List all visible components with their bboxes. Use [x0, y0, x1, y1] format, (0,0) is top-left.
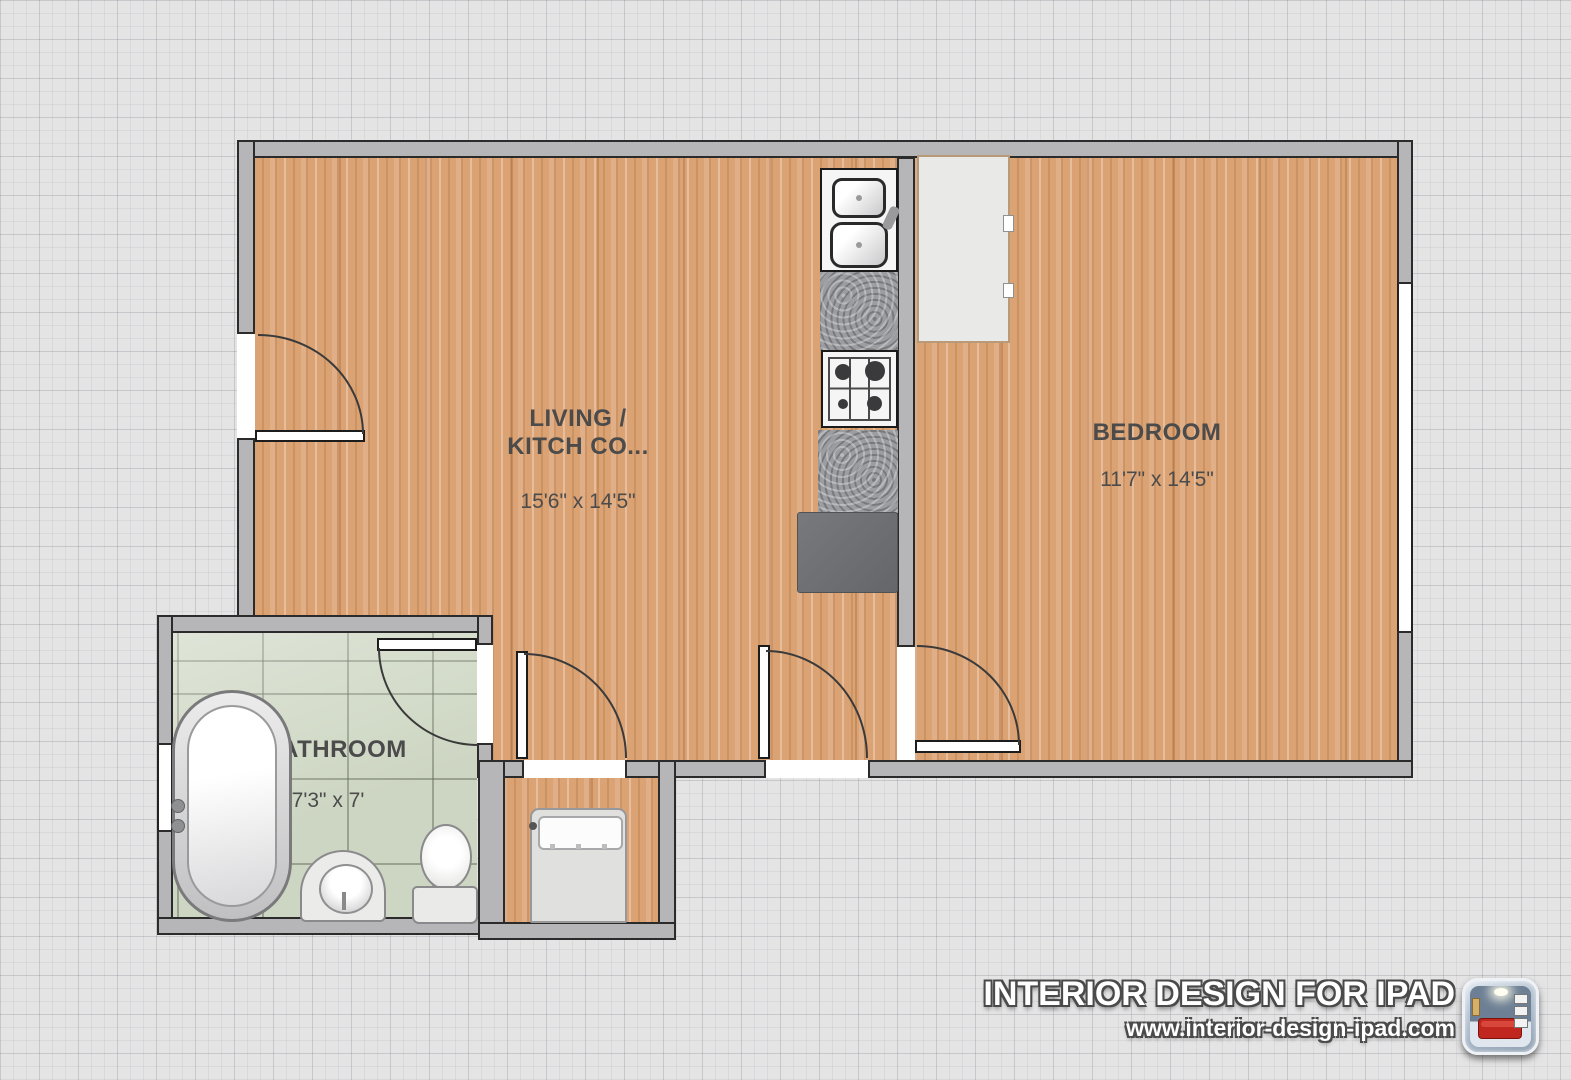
watermark: INTERIOR DESIGN FOR IPAD www.interior-de…: [700, 975, 1455, 1042]
wardrobe-handle-icon: [1003, 283, 1014, 298]
sink-drain-icon: [342, 892, 346, 910]
entry-door-opening: [237, 334, 255, 438]
floor-plan-canvas: { "plan": { "rooms": [ { "id": "living-k…: [0, 0, 1571, 1080]
bathtub[interactable]: [172, 690, 292, 922]
wall-right-lower: [1397, 631, 1413, 778]
wall-divider-living-bedroom: [897, 157, 915, 647]
living-room-label-line1: LIVING /: [438, 405, 718, 433]
wall-bathroom-right-upper: [477, 615, 493, 645]
living-room-label-line2: KITCH CO...: [438, 433, 718, 461]
living-room-label: LIVING / KITCH CO...: [438, 405, 718, 461]
bed[interactable]: [530, 808, 627, 923]
interior-design-app-icon: [1462, 978, 1539, 1055]
picture-frame-icon: [1472, 998, 1480, 1016]
bathroom-door-opening: [477, 645, 493, 743]
wall-hall-left: [478, 760, 505, 940]
bedroom-door-opening: [897, 647, 915, 760]
living-room-dimensions: 15'6" x 14'5": [438, 490, 718, 514]
kitchen-sink-basin-bottom: [830, 222, 888, 268]
watermark-title: INTERIOR DESIGN FOR IPAD: [700, 975, 1455, 1014]
app-icon-room-scene: [1470, 986, 1531, 1047]
wall-left-lower: [237, 438, 255, 620]
hall-door-opening-left: [524, 760, 625, 778]
kitchen-sink[interactable]: [820, 168, 898, 272]
wall-right-upper: [1397, 140, 1413, 284]
bathtub-basin: [187, 705, 277, 907]
stove-burner-icon: [867, 396, 882, 411]
bedroom-dimensions: 11'7" x 14'5": [1017, 468, 1297, 492]
bathtub-faucet-icon: [171, 819, 185, 833]
stove-cooktop[interactable]: [821, 350, 898, 428]
wardrobe-handle-icon: [1003, 215, 1014, 232]
wall-bathroom-top: [157, 615, 493, 633]
shelf-icon: [1514, 1006, 1528, 1016]
kitchen-counter-lower[interactable]: [818, 430, 898, 513]
wall-bathroom-left-upper: [157, 615, 173, 745]
toilet-seat[interactable]: [420, 824, 472, 890]
bed-knob-icon: [529, 822, 537, 830]
stove-burner-icon: [838, 399, 848, 409]
wall-top: [237, 140, 1413, 158]
shelf-icon: [1514, 994, 1528, 1004]
ceiling-lamp-icon: [1494, 988, 1508, 996]
bathtub-faucet-icon: [171, 799, 185, 813]
toilet-tank[interactable]: [412, 886, 478, 924]
wall-bottom-mid: [625, 760, 766, 778]
watermark-website: www.interior-design-ipad.com: [700, 1015, 1455, 1042]
refrigerator[interactable]: [797, 512, 898, 593]
wall-hall-bottom: [478, 922, 676, 940]
bedroom-window[interactable]: [1397, 284, 1413, 631]
sink-bowl: [319, 864, 373, 914]
bathroom-window[interactable]: [157, 745, 173, 830]
wall-bottom-right: [868, 760, 1413, 778]
kitchen-counter-upper[interactable]: [820, 272, 898, 350]
hall-door-opening-right: [766, 760, 868, 778]
shelf-icon: [1514, 1018, 1528, 1028]
kitchen-sink-basin-top: [832, 178, 886, 218]
wall-left-upper: [237, 140, 255, 334]
bedroom-label: BEDROOM: [1017, 419, 1297, 447]
wardrobe[interactable]: [917, 155, 1010, 343]
wall-hall-right: [658, 760, 676, 940]
stove-burner-icon: [865, 361, 885, 381]
stove-burner-icon: [835, 364, 851, 380]
